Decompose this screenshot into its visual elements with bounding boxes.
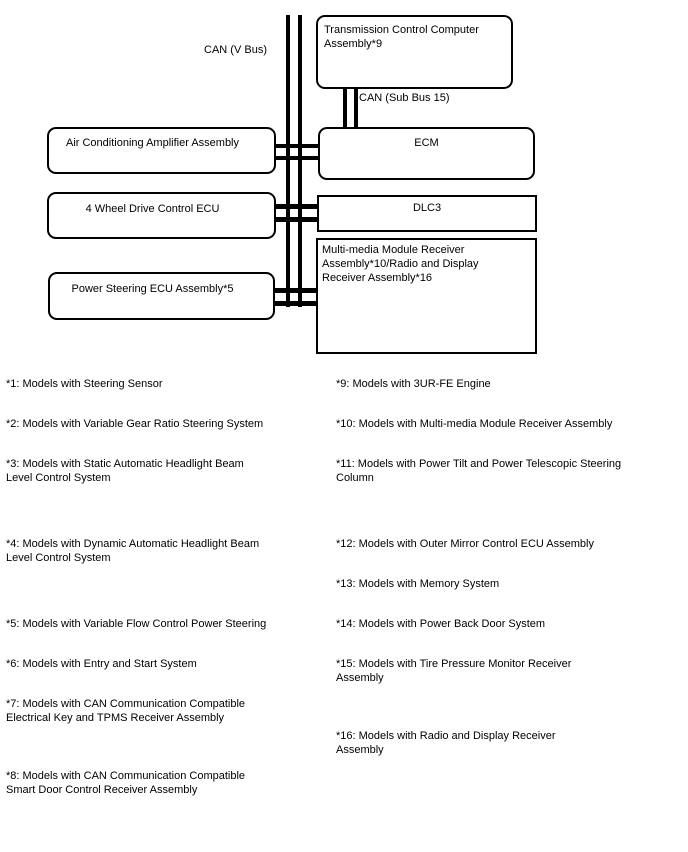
can-sub-bus-label: CAN (Sub Bus 15)	[359, 91, 449, 105]
footnote-2: *2: Models with Variable Gear Ratio Stee…	[6, 417, 328, 431]
footnote-4: *4: Models with Dynamic Automatic Headli…	[6, 537, 328, 565]
footnote-11: *11: Models with Power Tilt and Power Te…	[336, 457, 686, 485]
can-sub-bus-wire	[343, 88, 358, 128]
node-label: Transmission Control Computer Assembly*9	[324, 23, 505, 51]
node-dlc3: DLC3	[317, 195, 537, 232]
footnote-10: *10: Models with Multi-media Module Rece…	[336, 417, 686, 431]
footnote-12: *12: Models with Outer Mirror Control EC…	[336, 537, 686, 551]
bus-connector-steering-multimedia	[275, 288, 317, 306]
node-label: 4 Wheel Drive Control ECU	[49, 202, 256, 216]
can-v-bus-label: CAN (V Bus)	[160, 43, 267, 57]
node-label: Power Steering ECU Assembly*5	[50, 282, 255, 296]
footnote-16: *16: Models with Radio and Display Recei…	[336, 729, 686, 757]
footnote-7: *7: Models with CAN Communication Compat…	[6, 697, 328, 725]
bus-connector-aircon-ecm	[276, 144, 319, 160]
node-transmission-control-computer: Transmission Control Computer Assembly*9	[316, 15, 513, 89]
footnote-13: *13: Models with Memory System	[336, 577, 686, 591]
footnote-14: *14: Models with Power Back Door System	[336, 617, 686, 631]
can-v-bus-wire	[286, 15, 302, 307]
node-label: DLC3	[319, 201, 535, 215]
footnote-8: *8: Models with CAN Communication Compat…	[6, 769, 328, 797]
node-multimedia-module-receiver: Multi-media Module Receiver Assembly*10/…	[316, 238, 537, 354]
footnote-6: *6: Models with Entry and Start System	[6, 657, 328, 671]
footnote-1: *1: Models with Steering Sensor	[6, 377, 328, 391]
footnote-15: *15: Models with Tire Pressure Monitor R…	[336, 657, 686, 685]
can-bus-diagram: CAN (V Bus) CAN (Sub Bus 15) Transmissio…	[0, 0, 688, 852]
footnote-9: *9: Models with 3UR-FE Engine	[336, 377, 686, 391]
node-ecm: ECM	[318, 127, 535, 180]
node-4-wheel-drive-control-ecu: 4 Wheel Drive Control ECU	[47, 192, 276, 239]
footnote-5: *5: Models with Variable Flow Control Po…	[6, 617, 328, 631]
node-label: Air Conditioning Amplifier Assembly	[49, 136, 256, 150]
node-label: ECM	[320, 136, 533, 150]
node-air-conditioning-amplifier: Air Conditioning Amplifier Assembly	[47, 127, 276, 174]
node-label: Multi-media Module Receiver Assembly*10/…	[322, 243, 531, 285]
node-power-steering-ecu: Power Steering ECU Assembly*5	[48, 272, 275, 320]
footnote-3: *3: Models with Static Automatic Headlig…	[6, 457, 328, 485]
bus-connector-4wd-dlc3	[276, 204, 318, 222]
